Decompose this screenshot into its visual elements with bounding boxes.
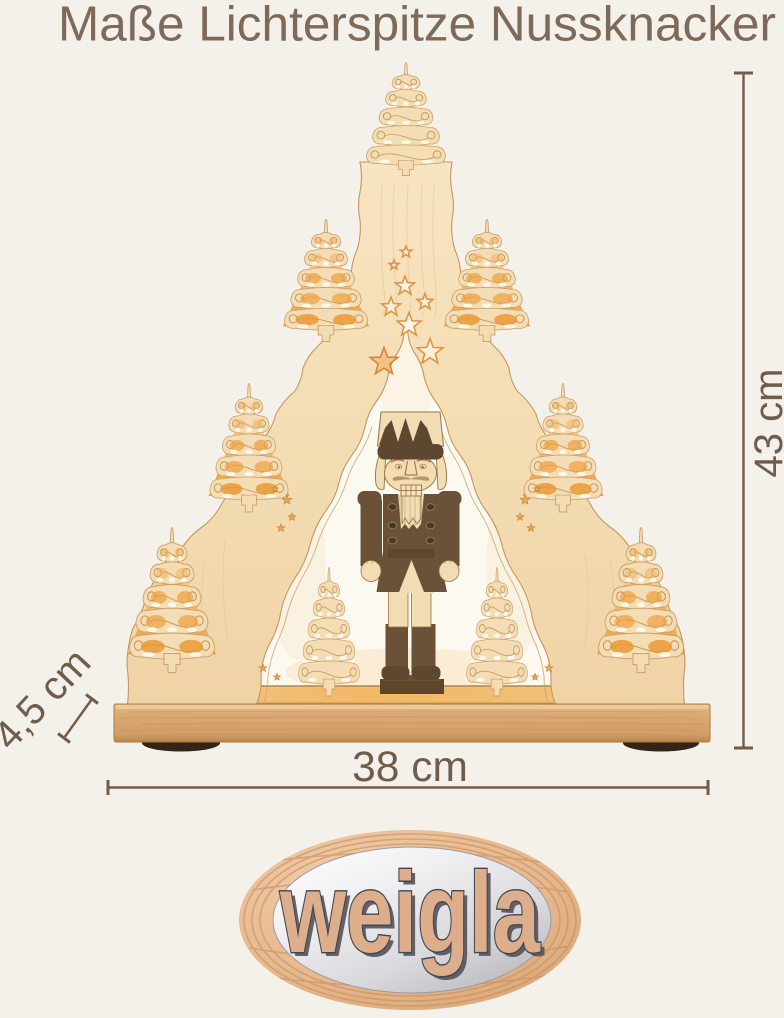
svg-text:43 cm: 43 cm [747,369,784,478]
svg-text:38 cm: 38 cm [352,744,468,791]
svg-text:Maße Lichterspitze Nussknacker: Maße Lichterspitze Nussknacker [58,0,776,52]
svg-text:weigla: weigla [279,850,541,977]
